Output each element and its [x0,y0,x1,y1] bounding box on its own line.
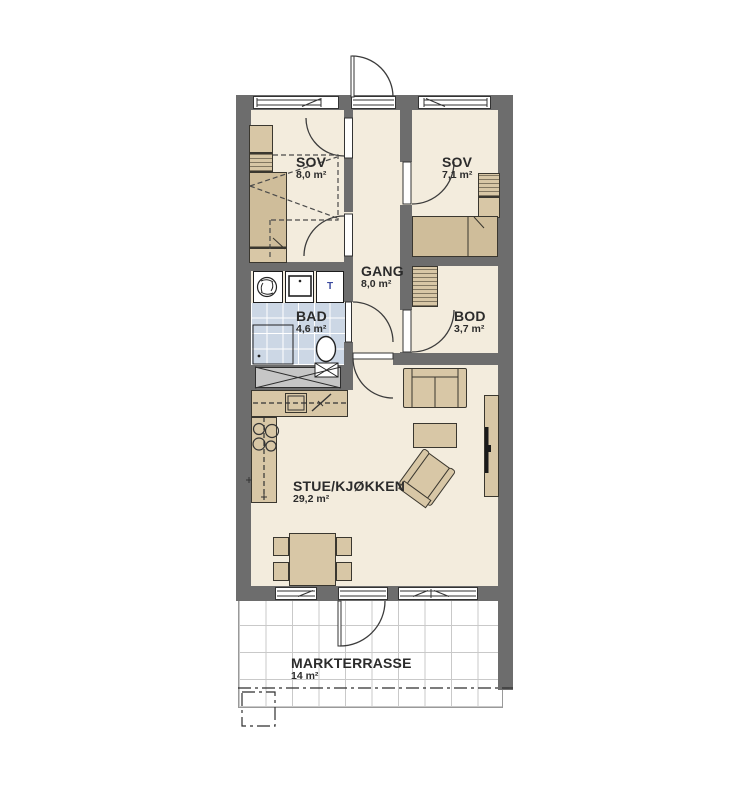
floor-plan: T [0,0,733,797]
room-label-bad: BAD 4,6 m² [296,309,327,336]
sov1-bed [249,172,287,248]
window-bottom-left [275,587,317,600]
dining-chair-1 [273,537,289,556]
wall-sov1-gang-b [344,158,353,212]
window-top-right [418,96,491,109]
room-name: GANG [361,264,404,278]
washing-machine [253,271,283,303]
room-area: 8,0 m² [296,169,326,182]
room-area: 29,2 m² [293,493,405,506]
window-bottom-right [398,587,478,600]
room-area: 3,7 m² [454,323,486,336]
bod-wardrobe [412,266,438,307]
room-label-terrasse: MARKTERRASSE 14 m² [291,656,412,683]
room-area: 8,0 m² [361,278,404,291]
room-area: 4,6 m² [296,323,327,336]
wall-sov1-bad [251,262,344,271]
terrace-door-threshold [338,587,388,600]
sov2-bed [412,216,498,257]
wall-sov2-bod [412,256,498,266]
sov1-wardrobe [249,125,273,153]
entrance-door-threshold [351,96,396,109]
room-label-bod: BOD 3,7 m² [454,309,486,336]
bathroom-sink-cabinet [285,271,314,303]
room-name: SOV [296,155,326,169]
wall-sov1-gang-c [344,256,353,302]
hall-closet [255,367,341,388]
room-name: BOD [454,309,486,323]
dining-table [289,533,336,586]
sov2-cabinet [478,197,500,218]
room-name: SOV [442,155,472,169]
wall-sov1-gang-a [344,110,353,118]
terrace-floor [238,600,503,708]
room-label-sov2: SOV 7,1 m² [442,155,472,182]
room-label-gang: GANG 8,0 m² [361,264,404,291]
dining-chair-2 [273,562,289,581]
dining-chair-4 [336,562,352,581]
room-name: BAD [296,309,327,323]
entrance-door-arc [352,56,393,97]
room-name: MARKTERRASSE [291,656,412,670]
coffee-table [413,423,457,448]
room-area: 7,1 m² [442,169,472,182]
dryer-label: T [316,271,344,303]
sov1-dresser [249,153,273,172]
room-area: 14 m² [291,670,412,683]
wall-bod-stue [393,353,498,365]
kitchen-counter-left [251,417,277,503]
sov1-bed-foot [249,248,287,263]
wall-gang-sov2-b [400,205,412,310]
sofa [403,368,467,408]
dining-chair-3 [336,537,352,556]
wall-gang-sov2-a [400,110,412,162]
kitchen-sink [285,393,307,413]
sov2-dresser [478,173,500,197]
tv-bench [484,395,499,497]
room-label-stue: STUE/KJØKKEN 29,2 m² [293,479,405,506]
room-label-sov1: SOV 8,0 m² [296,155,326,182]
room-name: STUE/KJØKKEN [293,479,405,493]
window-top-left [253,96,339,109]
